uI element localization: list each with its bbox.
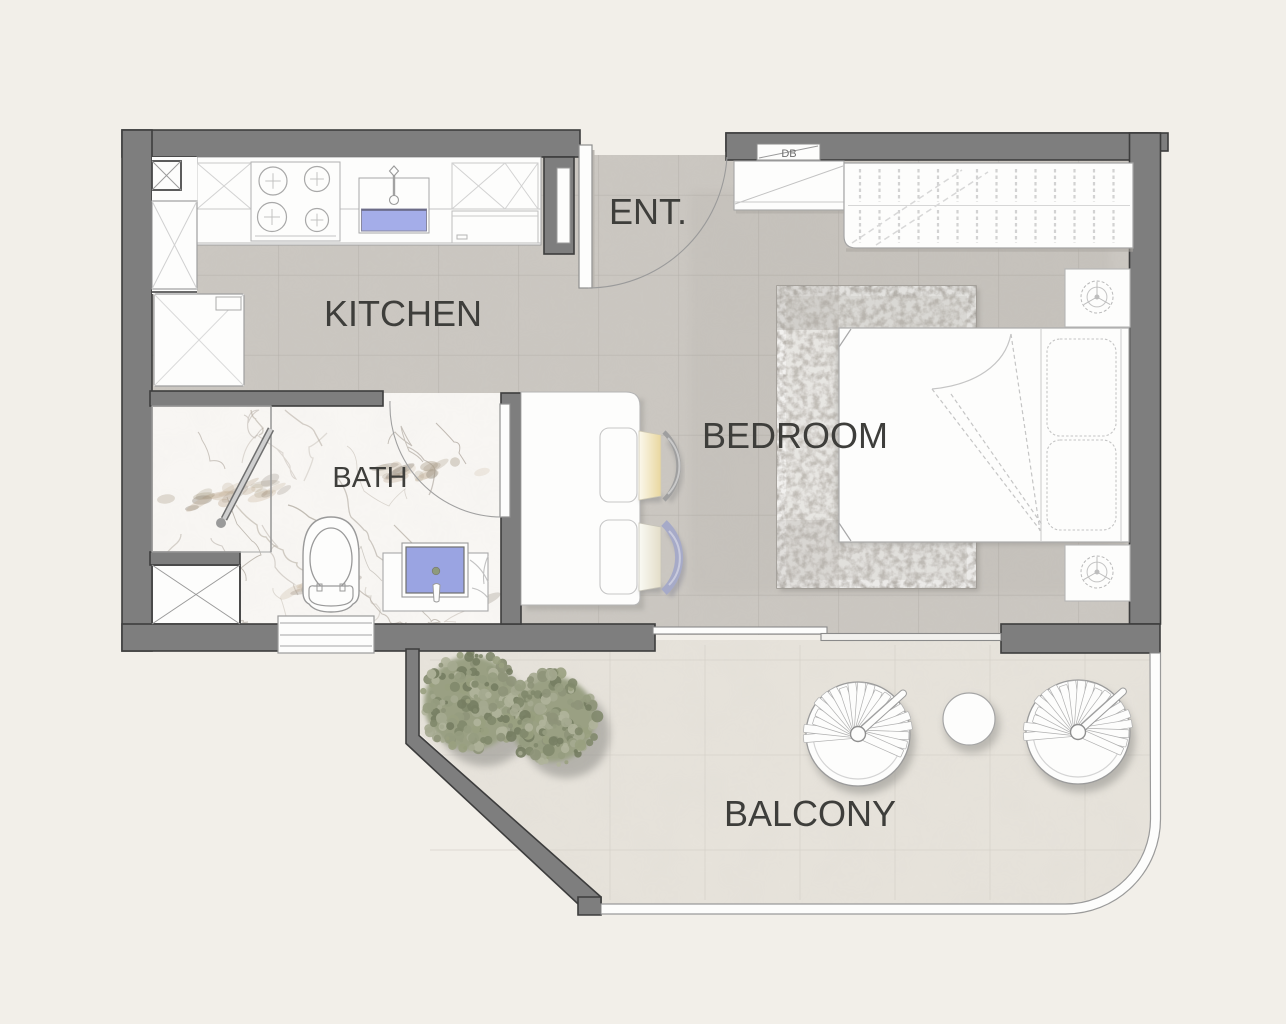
svg-text:DB: DB — [781, 148, 796, 160]
svg-text:BALCONY: BALCONY — [724, 793, 896, 834]
svg-text:BATH: BATH — [332, 462, 407, 494]
svg-text:BEDROOM: BEDROOM — [702, 415, 888, 456]
svg-text:ENT.: ENT. — [609, 191, 687, 232]
svg-text:KITCHEN: KITCHEN — [324, 293, 482, 334]
